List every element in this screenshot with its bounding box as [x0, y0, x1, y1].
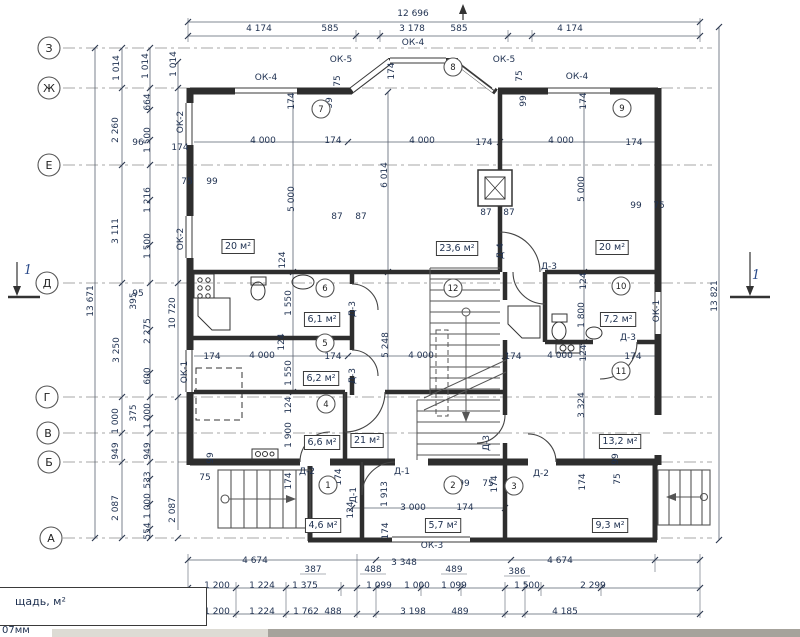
dim-text: 99 [206, 452, 216, 464]
node-number: 11 [616, 367, 627, 377]
dim-text: 1 216 [143, 187, 153, 213]
dim-text: 5 000 [577, 176, 587, 202]
dim-text: 1 224 [249, 607, 275, 617]
chimney-block [478, 170, 512, 206]
dim-text: 949 [143, 442, 153, 459]
dim-text: 2 260 [111, 117, 121, 143]
dim-text: 2 087 [168, 497, 178, 523]
window-label: ОК-1 [180, 361, 190, 383]
door-label: Д-3 [541, 262, 557, 272]
node-number: 5 [322, 339, 327, 349]
dim-text: 12 696 [397, 9, 429, 19]
dim-text: 1 500 [143, 233, 153, 259]
window-label: ОК-2 [176, 111, 186, 133]
dim-text: 4 674 [242, 556, 268, 566]
dim-text: 1 375 [292, 581, 318, 591]
dim-text: 4 000 [547, 351, 573, 361]
dim-text: 1 500 [514, 581, 540, 591]
window-label: ОК-5 [493, 55, 515, 65]
node-number: 4 [323, 400, 328, 410]
dim-text: 75 [515, 70, 525, 81]
dim-text: 585 [321, 24, 338, 34]
axis-label: В [44, 427, 52, 440]
dim-text: 4 000 [250, 136, 276, 146]
axis-label: Е [46, 159, 53, 172]
dim-text: 4 000 [548, 136, 574, 146]
dim-text: 489 [451, 607, 468, 617]
door-label: Д-4 [496, 243, 506, 259]
window-label: ОК-5 [330, 55, 352, 65]
dim-text: 1 014 [141, 53, 151, 79]
dim-text: 174 [504, 352, 521, 362]
dim-text: 87 [480, 208, 491, 218]
dim-text: 1 099 [441, 581, 467, 591]
axis-label: Ж [43, 82, 55, 95]
dim-text: 87 [503, 208, 514, 218]
exterior-walls [190, 61, 658, 541]
area-table-stub: щадь, м² [0, 587, 207, 626]
dim-text: 395 [129, 292, 139, 309]
room-area-label: 5,7 м² [428, 520, 457, 531]
stair-arrow-head [462, 412, 470, 422]
node-number: 12 [448, 284, 459, 294]
dim-text: 174 [456, 503, 473, 513]
dim-text: 75 [181, 177, 192, 187]
dim-text: 1 900 [284, 422, 294, 448]
dim-text: 99 [611, 453, 621, 465]
cropped-note-text: 07мм [2, 625, 30, 636]
dim-text: 174 [324, 352, 341, 362]
dim-text: 3 000 [400, 503, 426, 513]
dim-text: 5 000 [287, 186, 297, 212]
toilet [552, 322, 566, 340]
dim-text: 99 [630, 201, 642, 211]
node-number: 2 [450, 481, 455, 491]
dim-text: 1 200 [204, 581, 230, 591]
dim-text: 174 [171, 143, 188, 153]
dim-text: 533 [143, 471, 153, 488]
shower-tray [198, 298, 230, 330]
dim-text: 488 [364, 565, 381, 575]
node-number: 3 [511, 482, 516, 492]
node-number: 9 [619, 104, 624, 114]
dim-text: 1 000 [143, 493, 153, 519]
entry-porch-right [658, 470, 710, 525]
room-area-label: 23,6 м² [439, 243, 474, 254]
dim-text: 75 [333, 75, 343, 86]
dim-text: 2 299 [580, 581, 606, 591]
dim-text: 3 178 [399, 24, 425, 34]
dim-text: 1 000 [111, 408, 121, 434]
dim-text: 4 674 [547, 556, 573, 566]
dim-text: 174 [284, 472, 294, 489]
dim-text: 585 [450, 24, 467, 34]
room-area-label: 6,6 м² [307, 437, 336, 448]
dim-text: 1 200 [204, 607, 230, 617]
door-label: Д-3 [348, 368, 358, 384]
room-area-label: 20 м² [599, 242, 625, 253]
axis-label: З [45, 42, 52, 55]
dim-text: 4 000 [249, 351, 275, 361]
dim-text: 174 [287, 92, 297, 109]
node-number: 7 [318, 105, 323, 115]
node-number: 8 [450, 63, 455, 73]
window-label: ОК-3 [421, 541, 443, 551]
scrollbar-thumb[interactable] [268, 629, 800, 637]
dim-text: 1 913 [380, 481, 390, 507]
section-number: 1 [24, 263, 32, 278]
window-label: ОК-4 [255, 73, 278, 83]
dim-text: 949 [111, 442, 121, 459]
dim-text: 554 [143, 522, 153, 539]
dim-text: 124 [284, 396, 294, 413]
dim-text: 1 500 [143, 127, 153, 153]
room-area-label: 6,1 м² [307, 314, 336, 325]
dim-text: 1 800 [577, 302, 587, 328]
dim-text: 13 821 [710, 280, 720, 312]
window-label: ОК-2 [176, 228, 186, 250]
dim-text: 600 [143, 367, 153, 384]
section-arrow [746, 286, 754, 296]
bathroom-fixtures [194, 274, 602, 353]
dim-text: 1 224 [249, 581, 275, 591]
stairs [417, 268, 506, 460]
dim-text: 2 087 [111, 495, 121, 521]
dim-text: 6 014 [380, 162, 390, 188]
dim-text: 4 174 [557, 24, 583, 34]
room-area-label: 7,2 м² [603, 314, 632, 325]
dim-text: 174 [475, 138, 492, 148]
window-label: ОК-4 [566, 72, 589, 82]
dim-text: 1 550 [284, 290, 294, 316]
dim-text: 5 248 [381, 332, 391, 358]
dim-text: 174 [578, 473, 588, 490]
room-area-label: 21 м² [354, 435, 380, 446]
dim-text: 4 000 [409, 136, 435, 146]
interior-walls [190, 91, 658, 540]
dim-text: 10 720 [168, 297, 178, 329]
section-arrow [13, 286, 21, 296]
dim-text: 1 014 [169, 51, 179, 77]
dim-text: 387 [304, 565, 321, 575]
sink [292, 275, 314, 289]
dim-text: 3 250 [112, 337, 122, 363]
section-arrow [459, 4, 467, 14]
axis-label: Б [45, 456, 53, 469]
dim-text: 13 671 [86, 285, 96, 317]
dim-text: 174 [381, 522, 391, 539]
door-label: Д-3 [482, 435, 492, 451]
dim-text: 3 324 [577, 392, 587, 418]
dim-text: 124 [579, 272, 589, 289]
dim-text: 4 174 [246, 24, 272, 34]
door-label: Д-1 [394, 467, 410, 477]
door-label: Д-3 [348, 301, 358, 317]
dim-text: 1 099 [366, 581, 392, 591]
dim-text: 75 [613, 473, 623, 484]
room-area-label: 13,2 м² [602, 436, 637, 447]
dim-text: 1 000 [143, 403, 153, 429]
dim-text: 75 [653, 201, 664, 211]
dim-text: 99 [206, 177, 218, 187]
dim-text: 386 [508, 567, 525, 577]
dim-text: 87 [355, 212, 366, 222]
radiator [194, 274, 214, 298]
dim-text: 174 [203, 352, 220, 362]
axis-label: Д [43, 277, 52, 290]
entry-porch-left [218, 470, 310, 528]
dim-text: 124 [277, 333, 287, 350]
dim-text: 124 [278, 251, 288, 268]
window-label: ОК-4 [402, 38, 425, 48]
dim-text: 124 [579, 344, 589, 361]
axis-label: Г [44, 391, 51, 404]
area-table-label: щадь, м² [15, 595, 66, 608]
kitchen-fixtures [196, 368, 278, 460]
door-label: Д-1 [349, 487, 359, 503]
room-area-label: 6,2 м² [306, 373, 335, 384]
dim-text: 375 [129, 404, 139, 421]
dim-text: 1 000 [404, 581, 430, 591]
dim-text: 4 000 [408, 351, 434, 361]
door-label: Д-2 [299, 467, 315, 477]
shower-tray [508, 306, 540, 338]
dim-text: 96 [132, 138, 144, 148]
door-label: Д-3 [620, 333, 636, 343]
dim-text: 124 [346, 501, 356, 518]
dim-text: 3 348 [391, 558, 417, 568]
dim-text: 174 [579, 92, 589, 109]
dim-text: 174 [387, 62, 397, 79]
labels-layer: 12 6964 1745853 1785854 174ОК-4ОК-5ОК-5О… [24, 9, 760, 617]
dim-text: 1 014 [112, 55, 122, 81]
dim-text: 174 [490, 475, 500, 492]
dim-text: 489 [445, 565, 462, 575]
floor-plan-canvas: 12 6964 1745853 1785854 174ОК-4ОК-5ОК-5О… [0, 0, 800, 637]
room-area-label: 4,6 м² [308, 520, 337, 531]
room-area-label: 20 м² [225, 241, 251, 252]
dim-text: 3 198 [400, 607, 426, 617]
room-area-label: 9,3 м² [595, 520, 624, 531]
dim-text: 1 550 [284, 360, 294, 386]
dim-text: 87 [331, 212, 342, 222]
dim-text: 75 [199, 473, 210, 483]
dim-text: 1 762 [293, 607, 319, 617]
dim-text: 99 [519, 95, 529, 107]
dim-text: 4 185 [552, 607, 578, 617]
dim-text: 488 [324, 607, 341, 617]
section-number: 1 [752, 268, 760, 283]
dim-text: 174 [324, 136, 341, 146]
node-number: 10 [616, 282, 627, 292]
dim-text: 174 [625, 138, 642, 148]
node-number: 6 [322, 284, 327, 294]
dim-text: 3 111 [111, 218, 121, 244]
node-number: 1 [325, 481, 330, 491]
dim-text: 664 [143, 93, 153, 110]
axis-label: А [47, 532, 55, 545]
dim-text: 2 275 [143, 318, 153, 344]
door-label: Д-2 [533, 469, 549, 479]
sink [586, 327, 602, 339]
window-label: ОК-1 [652, 300, 662, 322]
horizontal-scrollbar[interactable] [52, 629, 800, 637]
dim-text: 174 [624, 352, 641, 362]
